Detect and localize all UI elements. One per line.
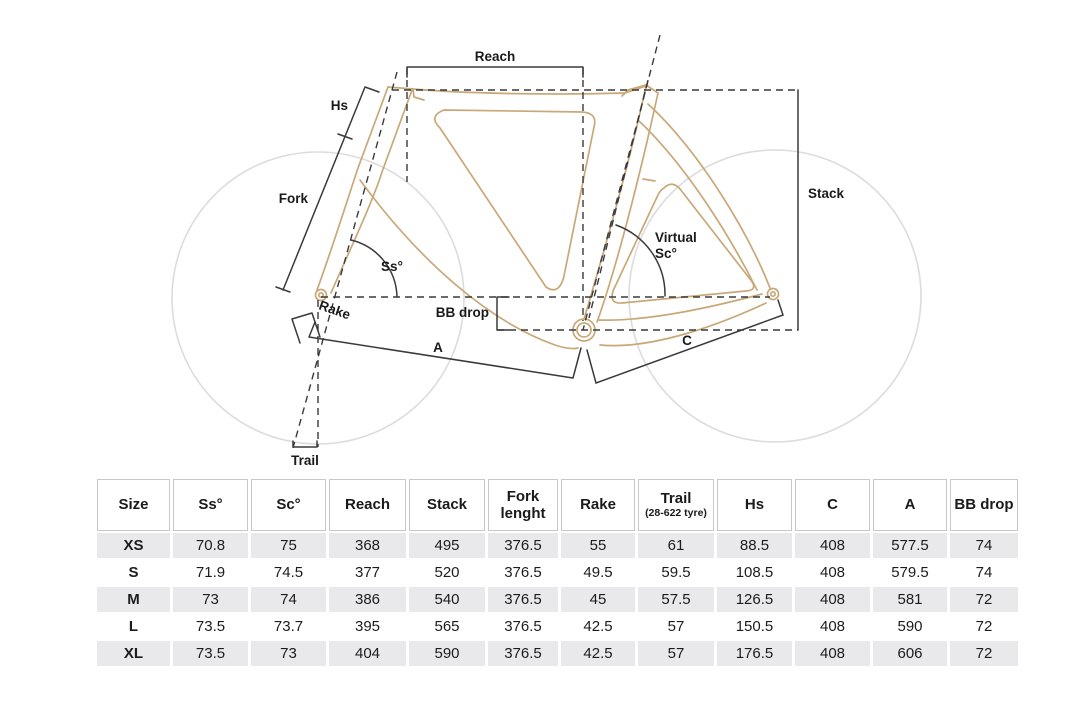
cell: 49.5	[561, 560, 635, 585]
cell: 73.5	[173, 614, 248, 639]
cell: 71.9	[173, 560, 248, 585]
column-header-trail: Trail (28-622 tyre)	[638, 479, 714, 531]
cell: 565	[409, 614, 485, 639]
column-header-stack: Stack	[409, 479, 485, 531]
cell: 408	[795, 533, 870, 558]
cell: 126.5	[717, 587, 792, 612]
cell: 42.5	[561, 641, 635, 666]
dimension-lines	[276, 67, 798, 447]
bb-drop-bracket	[497, 297, 509, 330]
frame-outline	[316, 85, 779, 349]
cell: 55	[561, 533, 635, 558]
bike-geometry-diagram: Reach Hs Fork Stack Ss° Virtual Sc° Rake…	[0, 0, 1080, 478]
bb-drop-label: BB drop	[436, 305, 489, 320]
stack-label: Stack	[808, 186, 845, 201]
fork-label: Fork	[279, 191, 309, 206]
cell: 590	[409, 641, 485, 666]
geometry-table: Size Ss° Sc° Reach Stack Fork lenght Rak…	[94, 477, 1021, 668]
cell: 386	[329, 587, 406, 612]
cell: 579.5	[873, 560, 947, 585]
column-header-c: C	[795, 479, 870, 531]
cell-size: S	[97, 560, 170, 585]
trail-label: Trail	[291, 453, 319, 468]
cell: 72	[950, 641, 1018, 666]
seat-tube-axis-line	[589, 80, 648, 318]
cell: 150.5	[717, 614, 792, 639]
column-header-ss: Ss°	[173, 479, 248, 531]
virtual-sc-label-line2: Sc°	[655, 246, 677, 261]
cell: 376.5	[488, 641, 558, 666]
column-header-reach: Reach	[329, 479, 406, 531]
cell: 176.5	[717, 641, 792, 666]
cell: 42.5	[561, 614, 635, 639]
cell: 377	[329, 560, 406, 585]
cell: 376.5	[488, 533, 558, 558]
cell: 408	[795, 560, 870, 585]
cell-size: XS	[97, 533, 170, 558]
cell: 88.5	[717, 533, 792, 558]
reach-label: Reach	[475, 49, 516, 64]
cell: 75	[251, 533, 326, 558]
cell: 520	[409, 560, 485, 585]
cell: 408	[795, 614, 870, 639]
column-header-sc: Sc°	[251, 479, 326, 531]
a-label: A	[433, 340, 443, 355]
cell: 57.5	[638, 587, 714, 612]
table-row-m: M 73 74 386 540 376.5 45 57.5 126.5 408 …	[97, 587, 1018, 612]
cell: 376.5	[488, 560, 558, 585]
column-header-a: A	[873, 479, 947, 531]
construction-lines	[293, 35, 798, 448]
cell: 57	[638, 641, 714, 666]
cell: 73.7	[251, 614, 326, 639]
cell: 73	[251, 641, 326, 666]
rear-dropout	[768, 289, 779, 300]
column-header-size: Size	[97, 479, 170, 531]
cell: 70.8	[173, 533, 248, 558]
geometry-table-section: Size Ss° Sc° Reach Stack Fork lenght Rak…	[94, 477, 986, 668]
c-label: C	[682, 333, 692, 348]
cell: 73	[173, 587, 248, 612]
cell: 72	[950, 614, 1018, 639]
cell: 74.5	[251, 560, 326, 585]
rake-label: Rake	[317, 298, 353, 323]
table-row-l: L 73.5 73.7 395 565 376.5 42.5 57 150.5 …	[97, 614, 1018, 639]
cell: 408	[795, 641, 870, 666]
cell-size: M	[97, 587, 170, 612]
ss-angle-label: Ss°	[381, 259, 403, 274]
cell: 368	[329, 533, 406, 558]
cell: 61	[638, 533, 714, 558]
cell: 606	[873, 641, 947, 666]
table-row-xl: XL 73.5 73 404 590 376.5 42.5 57 176.5 4…	[97, 641, 1018, 666]
cell: 74	[950, 533, 1018, 558]
hs-label: Hs	[331, 98, 348, 113]
cell: 404	[329, 641, 406, 666]
cell-size: L	[97, 614, 170, 639]
header-row: Size Ss° Sc° Reach Stack Fork lenght Rak…	[97, 479, 1018, 531]
cell: 376.5	[488, 614, 558, 639]
virtual-sc-label-line1: Virtual	[655, 230, 697, 245]
column-header-rake: Rake	[561, 479, 635, 531]
page: { "diagram": { "labels": { "reach": "Rea…	[0, 0, 1080, 720]
column-header-fork-lenght: Fork lenght	[488, 479, 558, 531]
cell: 495	[409, 533, 485, 558]
cell: 540	[409, 587, 485, 612]
cell: 395	[329, 614, 406, 639]
reach-bracket	[407, 67, 583, 77]
trail-header-main: Trail	[641, 490, 711, 507]
cell: 59.5	[638, 560, 714, 585]
cell: 108.5	[717, 560, 792, 585]
trail-header-subnote: (28-622 tyre)	[641, 508, 711, 520]
cell: 408	[795, 587, 870, 612]
cell: 590	[873, 614, 947, 639]
cell: 45	[561, 587, 635, 612]
cell-size: XL	[97, 641, 170, 666]
column-header-hs: Hs	[717, 479, 792, 531]
cell: 74	[251, 587, 326, 612]
cell: 376.5	[488, 587, 558, 612]
cell: 581	[873, 587, 947, 612]
cell: 57	[638, 614, 714, 639]
cell: 74	[950, 560, 1018, 585]
column-header-bb-drop: BB drop	[950, 479, 1018, 531]
cell: 73.5	[173, 641, 248, 666]
table-row-xs: XS 70.8 75 368 495 376.5 55 61 88.5 408 …	[97, 533, 1018, 558]
cell: 577.5	[873, 533, 947, 558]
table-row-s: S 71.9 74.5 377 520 376.5 49.5 59.5 108.…	[97, 560, 1018, 585]
cell: 72	[950, 587, 1018, 612]
